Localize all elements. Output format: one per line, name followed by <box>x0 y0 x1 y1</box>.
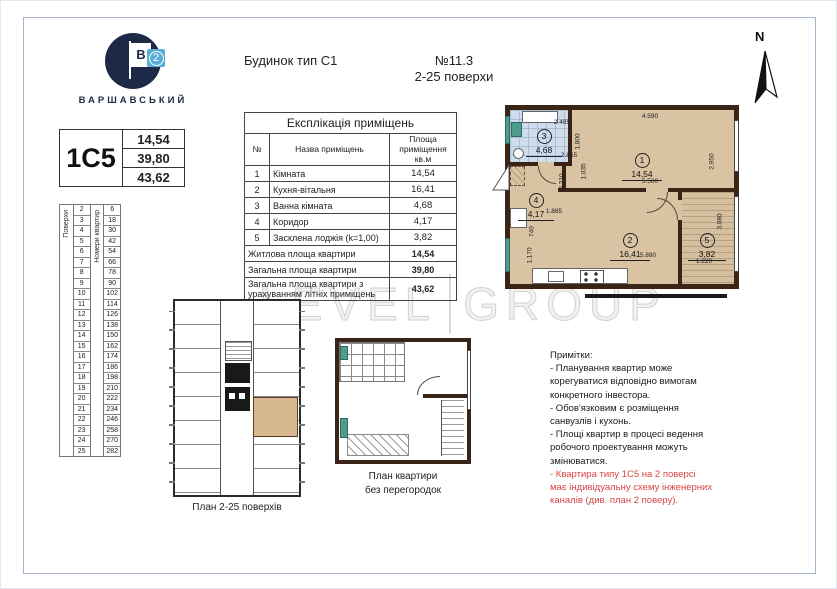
summary-label: Загальна площа квартири <box>245 262 390 278</box>
flag-number: 2 <box>149 51 164 66</box>
apartment-card: 1С5 14,54 39,80 43,62 <box>59 129 185 187</box>
dimension: 5.560 <box>610 178 690 185</box>
note-line: має індивідуальну схему інженерних <box>550 481 800 494</box>
dimension: 2.855 <box>544 152 594 159</box>
room-name: Коридор <box>270 214 390 230</box>
row-num: 1 <box>245 166 270 182</box>
room-number: 3 <box>537 129 552 144</box>
floor-number-cell: 9 <box>74 279 90 290</box>
room-area: 3,82 <box>390 230 457 246</box>
floor-plan: 1 14,54 2 16,41 3 4,68 4 4,17 5 3,82 4.5… <box>505 105 739 289</box>
elevator-shaft-icon <box>225 363 250 383</box>
explication-title: Експлікація приміщень <box>245 113 457 134</box>
floor-number-cell: 6 <box>74 247 90 258</box>
grid-hatch-area <box>339 342 405 382</box>
row-num: 3 <box>245 198 270 214</box>
entrance-door-icon <box>492 165 510 192</box>
apartment-number-cell: 234 <box>104 405 120 416</box>
room-area: 4,68 <box>390 198 457 214</box>
apartment-number-cell: 258 <box>104 426 120 437</box>
total-area: 39,80 <box>123 149 184 168</box>
room-label-1: 1 14,54 <box>622 150 662 181</box>
row-num: 4 <box>245 214 270 230</box>
apartment-number-cell: 222 <box>104 394 120 405</box>
no-partitions-caption-2: без перегородок <box>335 485 471 496</box>
sink-icon <box>548 271 564 282</box>
scale-bar <box>585 294 727 298</box>
floors-range: 2-25 поверхи <box>399 69 509 84</box>
apartment-number-cell: 198 <box>104 373 120 384</box>
brand-logo: В 2 ВАРШАВСЬКИЙ <box>73 33 193 106</box>
apartment-number-cell: 54 <box>104 247 120 258</box>
brand-name: ВАРШАВСЬКИЙ <box>73 95 193 106</box>
building-number: №11.3 <box>399 53 509 68</box>
room-name: Ванна кімната <box>270 198 390 214</box>
no-partitions-plan <box>335 338 471 464</box>
apartment-number-cell: 18 <box>104 216 120 227</box>
window <box>505 238 510 272</box>
living-area: 14,54 <box>123 130 184 149</box>
apts-label: Номери квартир <box>94 210 101 263</box>
north-arrow: N <box>745 29 789 113</box>
room-number: 4 <box>529 193 544 208</box>
apts-col-numbers: 6183042546678901021141261381501621741861… <box>104 205 120 456</box>
flag-number-icon: 2 <box>147 49 165 67</box>
window <box>734 120 739 172</box>
floor-number-cell: 3 <box>74 216 90 227</box>
dimension: 2.485 <box>532 119 592 126</box>
floor-number-cell: 24 <box>74 436 90 447</box>
door-swing <box>417 376 440 395</box>
balconies-right <box>299 311 305 485</box>
fixture-icon <box>340 346 348 360</box>
note-line: Примітки: <box>550 349 800 362</box>
apartment-type: 1С5 <box>60 130 122 186</box>
apartment-areas: 14,54 39,80 43,62 <box>122 130 184 186</box>
floor-number-cell: 22 <box>74 415 90 426</box>
room-label-5: 5 3,82 <box>688 230 726 261</box>
room-area: 16,41 <box>390 182 457 198</box>
col-header-name: Назва приміщень <box>270 134 390 166</box>
dimension: 1.800 <box>575 130 582 154</box>
no-partitions-caption-1: План квартири <box>335 471 471 482</box>
stairs-icon <box>225 341 252 361</box>
apartment-number-cell: 102 <box>104 289 120 300</box>
dimension: 3.080 <box>717 210 724 234</box>
apartment-number-cell: 270 <box>104 436 120 447</box>
floor-number-cell: 5 <box>74 237 90 248</box>
total-area-with-summer: 43,62 <box>123 168 184 186</box>
summary-label: Загальна площа квартири з урахуванням лі… <box>245 278 390 301</box>
floor-number-cell: 8 <box>74 268 90 279</box>
floor-number-cell: 10 <box>74 289 90 300</box>
apartment-number-cell: 186 <box>104 363 120 374</box>
floor-number-cell: 4 <box>74 226 90 237</box>
floor-number-cell: 18 <box>74 373 90 384</box>
dimension: 1.170 <box>527 244 534 268</box>
room-name: Кухня-вітальня <box>270 182 390 198</box>
apartments-left-strip <box>175 301 221 495</box>
summary-value: 43,62 <box>390 278 457 301</box>
apartment-number-cell: 42 <box>104 237 120 248</box>
highlighted-apartment <box>253 397 298 437</box>
apartment-number-cell: 246 <box>104 415 120 426</box>
room-name: Засклена лоджія (k=1,00) <box>270 230 390 246</box>
note-line: санвузлів і кухонь. <box>550 415 800 428</box>
dimension: 2.950 <box>709 150 716 174</box>
floor-number-cell: 17 <box>74 363 90 374</box>
apartment-number-cell: 174 <box>104 352 120 363</box>
note-line: конкретного інвестора. <box>550 389 800 402</box>
note-line: змінюватися. <box>550 455 800 468</box>
wall <box>558 188 646 192</box>
loggia-plank-area <box>441 400 464 456</box>
door-swing <box>657 198 678 220</box>
room-area: 14,54 <box>390 166 457 182</box>
note-line: - Квартира типу 1С5 на 2 поверсі <box>550 468 800 481</box>
apartment-number-cell: 210 <box>104 384 120 395</box>
col-header-area: Площа приміщення кв.м <box>390 134 457 166</box>
summary-label: Житлова площа квартири <box>245 246 390 262</box>
building-type-title: Будинок тип С1 <box>244 53 337 68</box>
apartment-number-cell: 66 <box>104 258 120 269</box>
building-overview-plan <box>173 299 301 497</box>
window <box>467 350 471 410</box>
stove-icon <box>580 270 604 284</box>
sheet: LEVEL GROUP В 2 ВАРШАВСЬКИЙ Будинок тип … <box>0 0 837 589</box>
floor-number-cell: 14 <box>74 331 90 342</box>
floor-number-cell: 12 <box>74 310 90 321</box>
room-name: Кімната <box>270 166 390 182</box>
note-line: корегуватися відповідно вимогам <box>550 375 800 388</box>
room-label-4: 4 4,17 <box>518 190 554 221</box>
room-number: 2 <box>623 233 638 248</box>
elevator-shaft-icon <box>225 387 250 411</box>
elevator-cab-icon <box>229 393 235 399</box>
dimension: 5.880 <box>608 252 688 259</box>
compass-needle-icon <box>745 41 785 121</box>
service-shaft <box>510 166 525 186</box>
dimension: 1.035 <box>581 160 588 184</box>
explication-table: Експлікація приміщень № Назва приміщень … <box>244 112 457 301</box>
note-line: робочого проектування можуть <box>550 441 800 454</box>
floor-number-cell: 20 <box>74 394 90 405</box>
dimension: 1.220 <box>682 258 726 265</box>
row-num: 2 <box>245 182 270 198</box>
apartment-number-cell: 114 <box>104 300 120 311</box>
floor-number-cell: 19 <box>74 384 90 395</box>
floor-number-cell: 11 <box>74 300 90 311</box>
room-area: 4,17 <box>390 214 457 230</box>
floor-number-cell: 21 <box>74 405 90 416</box>
summary-value: 39,80 <box>390 262 457 278</box>
toilet-icon <box>513 148 524 159</box>
apartment-number-cell: 126 <box>104 310 120 321</box>
apartment-number-cell: 138 <box>104 321 120 332</box>
elevator-cab-icon <box>239 393 245 399</box>
floors-col-numbers: 2345678910111213141516171819202122232425 <box>74 205 91 456</box>
dimension: 4.590 <box>610 113 690 120</box>
floors-label: Поверхи <box>63 210 70 238</box>
floor-number-cell: 2 <box>74 205 90 216</box>
apartment-number-cell: 30 <box>104 226 120 237</box>
fixture-icon <box>340 418 348 438</box>
window <box>505 116 510 144</box>
door-swing <box>538 166 556 184</box>
dimension: 2.210 <box>559 170 566 194</box>
brand-logo-icon: В 2 <box>105 33 161 89</box>
note-line: каналів (див. план 2 поверу). <box>550 494 800 507</box>
apartment-number-cell: 6 <box>104 205 120 216</box>
floors-col-label: Поверхи <box>60 205 74 456</box>
note-line: - Планування квартир може <box>550 362 800 375</box>
diagonal-hatch-area <box>347 434 409 456</box>
notes-block: Примітки:- Планування квартир можекорегу… <box>550 349 800 507</box>
building-plan-caption: План 2-25 поверхів <box>173 502 301 513</box>
floor-number-cell: 13 <box>74 321 90 332</box>
dimension: 740 <box>529 222 536 242</box>
floor-number-cell: 25 <box>74 447 90 457</box>
apts-col-label: Номери квартир <box>91 205 105 456</box>
room-number: 5 <box>700 233 715 248</box>
apartment-number-cell: 78 <box>104 268 120 279</box>
balcony-window <box>734 196 739 272</box>
floors-table: Поверхи 23456789101112131415161718192021… <box>59 204 121 457</box>
floor-number-cell: 16 <box>74 352 90 363</box>
summary-value: 14,54 <box>390 246 457 262</box>
apartment-number-cell: 90 <box>104 279 120 290</box>
apartment-number-cell: 162 <box>104 342 120 353</box>
note-line: - Обов'язковим є розміщення <box>550 402 800 415</box>
floor-number-cell: 15 <box>74 342 90 353</box>
room-number: 1 <box>635 153 650 168</box>
row-num: 5 <box>245 230 270 246</box>
apartment-number-cell: 282 <box>104 447 120 457</box>
washing-machine-icon <box>511 122 522 137</box>
note-line: - Площі квартир в процесі ведення <box>550 428 800 441</box>
apartment-number-cell: 150 <box>104 331 120 342</box>
floor-number-cell: 23 <box>74 426 90 437</box>
col-header-num: № <box>245 134 270 166</box>
dimension: 1.885 <box>534 208 574 215</box>
floor-number-cell: 7 <box>74 258 90 269</box>
